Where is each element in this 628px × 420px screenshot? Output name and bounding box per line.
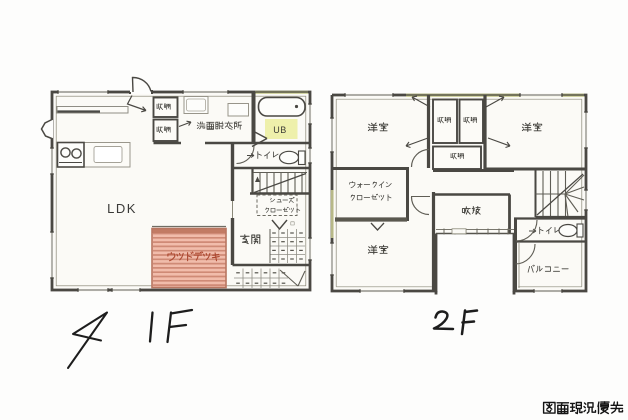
svg-text:UB: UB bbox=[273, 125, 287, 135]
svg-text:LDK: LDK bbox=[107, 201, 137, 216]
